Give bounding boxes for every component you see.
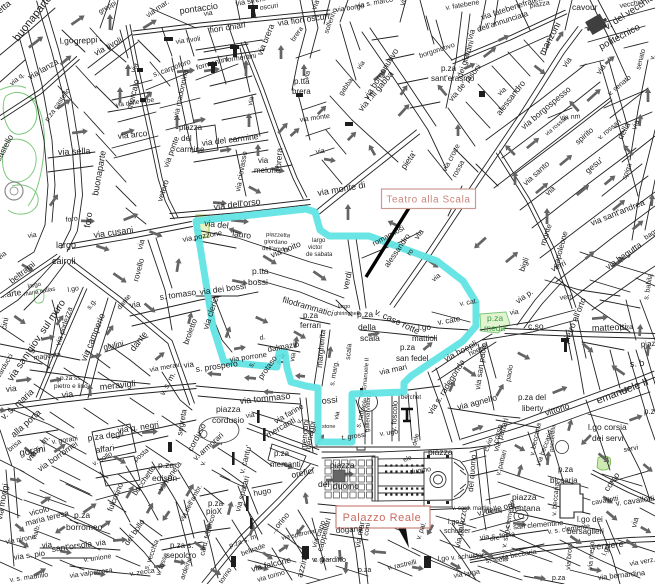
svg-text:duomo: duomo xyxy=(333,481,359,491)
svg-text:dei servi: dei servi xyxy=(592,433,624,443)
svg-text:ossi: ossi xyxy=(321,394,338,406)
svg-text:p.za: p.za xyxy=(400,343,416,352)
svg-text:via: via xyxy=(5,383,17,394)
svg-text:Palazzo Reale: Palazzo Reale xyxy=(343,512,422,524)
svg-text:cairoli: cairoli xyxy=(52,256,76,266)
svg-text:c.so: c.so xyxy=(528,321,544,331)
svg-text:via: via xyxy=(245,412,255,420)
svg-text:via: via xyxy=(258,156,269,165)
svg-text:l.go v.: l.go v. xyxy=(448,519,466,526)
svg-text:p.za: p.za xyxy=(644,407,655,416)
svg-text:scala: scala xyxy=(345,343,353,360)
svg-text:largo: largo xyxy=(312,238,326,244)
svg-text:piazza: piazza xyxy=(428,447,453,457)
svg-text:v.: v. xyxy=(649,54,655,60)
svg-text:Teatro alla Scala: Teatro alla Scala xyxy=(386,195,470,206)
svg-text:martini: martini xyxy=(484,509,502,515)
svg-text:piaz: piaz xyxy=(640,339,655,349)
svg-text:largo: largo xyxy=(56,240,76,250)
svg-text:via: via xyxy=(333,411,341,421)
svg-text:de sabata: de sabata xyxy=(306,252,333,258)
svg-text:victor: victor xyxy=(308,245,322,251)
svg-text:scala: scala xyxy=(360,333,380,343)
svg-text:p.za: p.za xyxy=(274,449,290,458)
svg-text:carmine: carmine xyxy=(176,145,205,154)
svg-text:della: della xyxy=(358,322,376,332)
svg-text:p.za: p.za xyxy=(487,313,503,323)
svg-text:p.za: p.za xyxy=(552,575,565,582)
svg-text:p.za s.: p.za s. xyxy=(170,541,194,550)
svg-text:foro: foro xyxy=(82,212,94,229)
svg-text:borromeo: borromeo xyxy=(66,522,103,532)
svg-text:pietro e lino: pietro e lino xyxy=(54,383,88,390)
svg-text:p.za: p.za xyxy=(357,309,373,319)
svg-text:via: via xyxy=(95,538,107,548)
svg-text:p.za: p.za xyxy=(358,567,371,574)
svg-text:p.za: p.za xyxy=(303,311,319,320)
svg-text:ore: ore xyxy=(489,535,500,543)
svg-text:via: via xyxy=(183,360,195,370)
svg-text:san fedel: san fedel xyxy=(396,354,429,363)
svg-text:piazza: piazza xyxy=(330,460,355,470)
svg-text:v. foscolo: v. foscolo xyxy=(389,401,400,433)
svg-text:greppi: greppi xyxy=(73,34,97,46)
svg-text:via sella: via sella xyxy=(58,146,91,157)
svg-text:piazza: piazza xyxy=(179,123,203,132)
svg-text:via: via xyxy=(203,10,213,18)
svg-text:via: via xyxy=(61,389,73,400)
svg-text:via: via xyxy=(509,309,519,317)
svg-text:p.za: p.za xyxy=(441,64,457,73)
svg-text:berchet: berchet xyxy=(401,395,421,401)
svg-text:largo: largo xyxy=(338,304,350,310)
svg-text:p.za ss.: p.za ss. xyxy=(60,375,83,382)
svg-text:mattioli: mattioli xyxy=(412,334,438,343)
svg-text:via: via xyxy=(27,232,37,240)
svg-text:del: del xyxy=(181,134,192,143)
svg-text:p.za: p.za xyxy=(558,465,574,474)
svg-text:l.go corsia: l.go corsia xyxy=(588,422,627,432)
svg-text:s. b: s. b xyxy=(629,358,644,369)
svg-text:schuster: schuster xyxy=(444,528,471,535)
svg-text:v. giardino: v. giardino xyxy=(312,555,346,564)
svg-text:cordusio: cordusio xyxy=(212,415,244,425)
svg-text:p.za del: p.za del xyxy=(518,393,546,402)
svg-text:ferrari: ferrari xyxy=(300,321,321,330)
svg-text:p.za: p.za xyxy=(74,510,90,520)
svg-text:meda: meda xyxy=(484,323,506,333)
svg-text:brera: brera xyxy=(292,87,311,96)
svg-text:del: del xyxy=(318,479,329,489)
svg-text:bossi: bossi xyxy=(248,277,268,287)
svg-text:l.go: l.go xyxy=(59,35,74,46)
svg-text:l.go dei: l.go dei xyxy=(577,515,603,524)
svg-text:piazza: piazza xyxy=(216,404,241,414)
svg-text:p.za: p.za xyxy=(620,324,634,332)
svg-text:p.tta: p.tta xyxy=(252,266,269,276)
svg-text:pioX: pioX xyxy=(206,507,223,516)
svg-text:melone: melone xyxy=(254,166,281,175)
svg-text:via: via xyxy=(315,148,325,156)
svg-text:l.go: l.go xyxy=(418,323,431,332)
svg-text:liberty: liberty xyxy=(522,404,543,413)
svg-text:stone: stone xyxy=(322,424,335,430)
svg-text:mercanti: mercanti xyxy=(270,460,301,469)
svg-text:fentana: fentana xyxy=(512,503,541,513)
svg-text:cavour: cavour xyxy=(572,2,598,12)
